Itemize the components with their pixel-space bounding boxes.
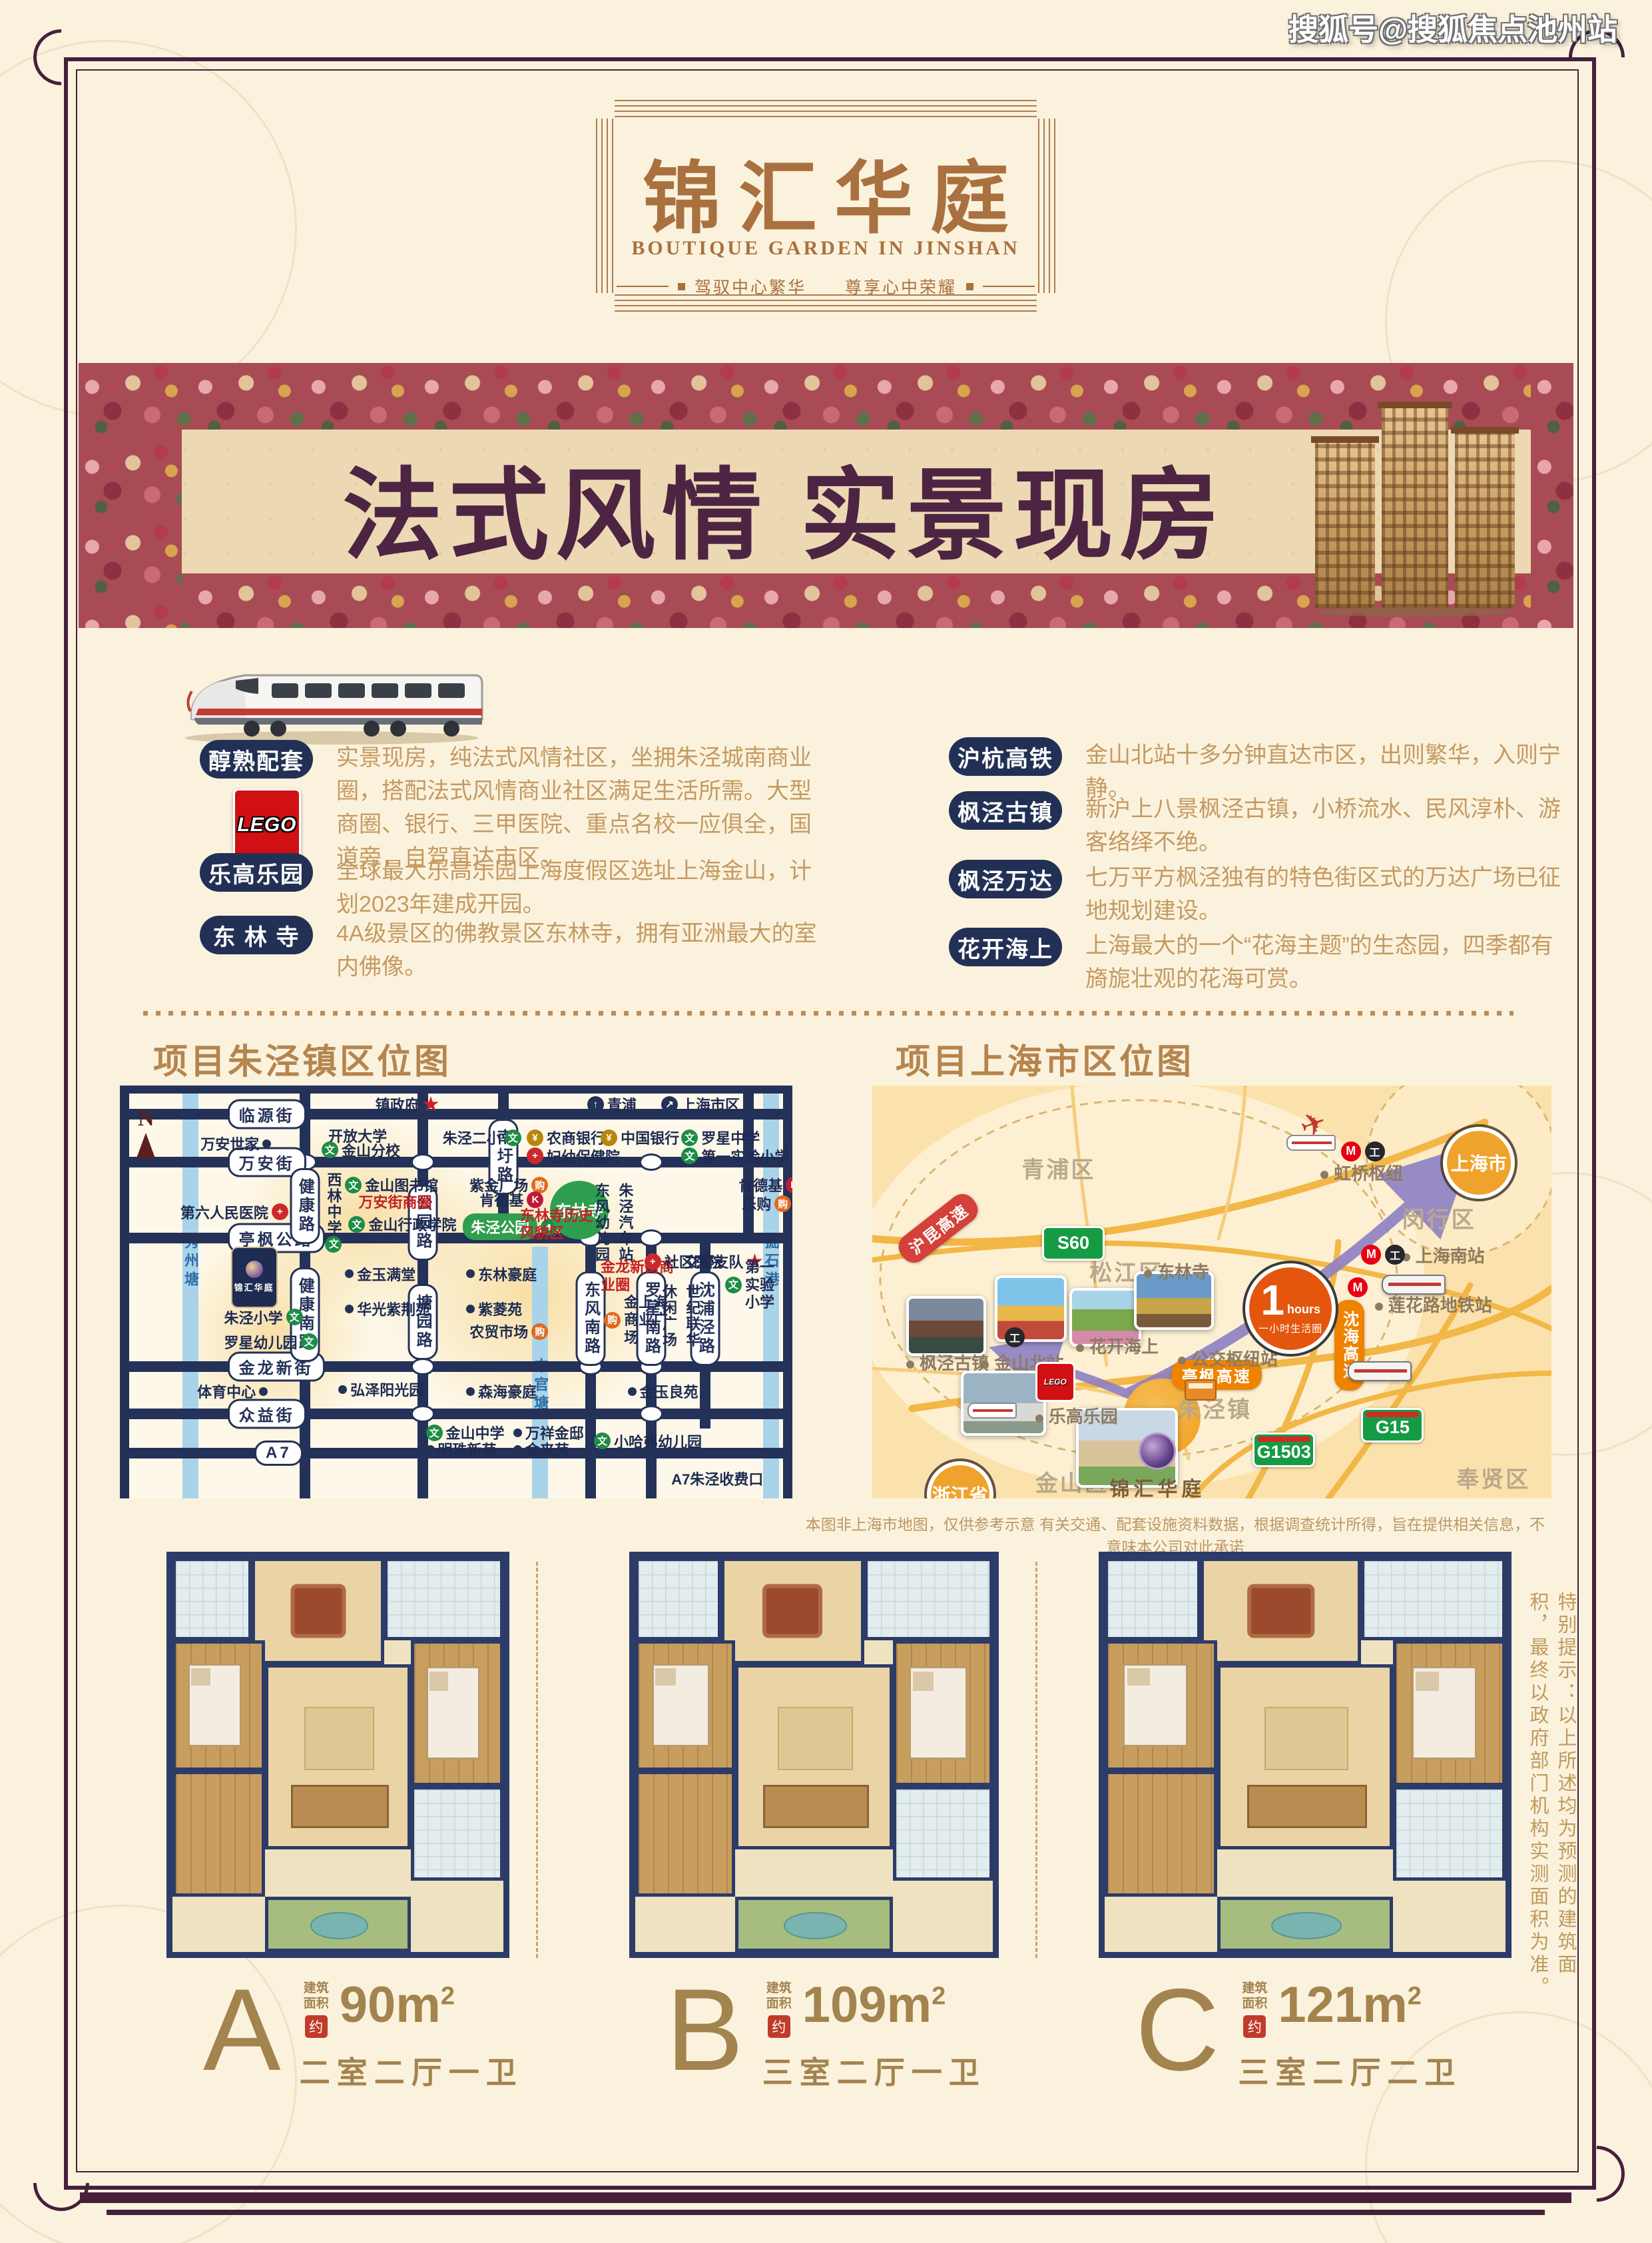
feature-row: 乐高乐园全球最大乐高乐园上海度假区选址上海金山，计划2023年建成开园。 bbox=[200, 853, 822, 921]
kfc-icon: K bbox=[527, 1191, 543, 1208]
side-note: 特别提示：以上所述均为预测的建筑面积，最终以政府部门机构实测面积为准。 bbox=[1523, 1592, 1579, 2005]
floorplan-config: 二室二厅一卫 bbox=[300, 2049, 523, 2092]
map-poi: 东林豪庭 bbox=[463, 1263, 537, 1285]
map-street-label: A7 bbox=[254, 1441, 303, 1466]
map-street-label: 塘园路 bbox=[408, 1284, 437, 1360]
poi-label: 罗星幼儿园 bbox=[224, 1331, 298, 1353]
feature-text: 七万平方枫泾独有的特色街区式的万达广场已征地规划建设。 bbox=[1085, 861, 1571, 928]
poi-label: 万安街商圈 bbox=[359, 1191, 432, 1212]
shield-label: G1503 bbox=[1257, 1442, 1311, 1462]
map-disclaimer: 本图非上海市地图，仅供参考示意 有关交通、配套设施资料数据，根据调查统计所得，旨… bbox=[802, 1512, 1548, 1557]
floral-border-right bbox=[1531, 363, 1573, 628]
metro-icon: M bbox=[1341, 1141, 1361, 1161]
floorplan-room bbox=[735, 1664, 892, 1849]
frame-bottom-bar bbox=[80, 2192, 1571, 2203]
feature-text: 上海最大的一个“花海主题”的生态园，四季都有旖旎壮观的花海可赏。 bbox=[1085, 929, 1571, 996]
floorplan-room bbox=[1105, 1640, 1217, 1770]
floorplan-b-drawing bbox=[629, 1552, 999, 1958]
floorplan-caption: A建筑面积约90m2二室二厅一卫 bbox=[203, 1981, 523, 2092]
map-poi: 弘泽阳光园 bbox=[335, 1379, 423, 1400]
map-poi: 镇政府★ bbox=[376, 1094, 442, 1115]
floorplan-letter: C bbox=[1135, 1981, 1219, 2081]
floorplan-room bbox=[735, 1897, 892, 1952]
map-intersection-dot bbox=[639, 1229, 663, 1247]
floorplan-area-value: 121m2 bbox=[1278, 1981, 1422, 2029]
floorplan-area-sup: 2 bbox=[932, 1983, 946, 2011]
poi-label: 东风幼儿园 bbox=[591, 1183, 612, 1263]
floorplan-room bbox=[1105, 1558, 1201, 1640]
map-poi: 文第一实验小学 bbox=[678, 1145, 789, 1167]
school-icon: 文 bbox=[594, 1433, 611, 1449]
dot-icon bbox=[513, 1445, 522, 1454]
tagline-text: 尊享心中荣耀 bbox=[845, 274, 957, 298]
logo-tagline: 驾驭中心繁华 尊享心中荣耀 bbox=[596, 274, 1055, 298]
dot-icon bbox=[262, 1139, 271, 1148]
features-right-column: 沪杭高铁金山北站十多分钟直达市区，出则繁华，入则宁静。枫泾古镇新沪上八景枫泾古镇… bbox=[949, 736, 1571, 1022]
floorplan-room bbox=[635, 1771, 735, 1897]
map-poi: 朱泾汽车站 bbox=[614, 1183, 635, 1263]
dotted-divider bbox=[143, 1011, 1514, 1016]
map-poi: 农贸市场购 bbox=[469, 1321, 551, 1342]
poi-label: 紫菱苑 bbox=[478, 1298, 522, 1319]
feature-text: 4A级景区的佛教景区东林寺，拥有亚洲最大的室内佛像。 bbox=[336, 917, 822, 984]
school-icon: 文 bbox=[505, 1129, 521, 1146]
map-river bbox=[182, 1086, 198, 1498]
feature-label: 沪杭高铁 bbox=[949, 737, 1062, 776]
map-poi: 休闲广场 bbox=[658, 1284, 679, 1348]
shield-label: S60 bbox=[1057, 1233, 1089, 1253]
feature-row: 花开海上上海最大的一个“花海主题”的生态园，四季都有旖旎壮观的花海可赏。 bbox=[949, 928, 1571, 996]
map-poi: 华光紫荆苑 bbox=[342, 1298, 430, 1319]
feature-label: 醇熟配套 bbox=[200, 740, 313, 779]
school-icon: 文 bbox=[725, 1277, 742, 1293]
map-poi: 朱泾小学文 bbox=[224, 1307, 306, 1328]
map-poi: 森海豪庭 bbox=[463, 1381, 537, 1402]
feature-text: 新沪上八景枫泾古镇，小桥流水、民风淳朴、游客络绎不绝。 bbox=[1085, 793, 1571, 859]
map-poi: 罗星幼儿园文 bbox=[224, 1331, 321, 1353]
floorplan-room bbox=[635, 1558, 721, 1640]
dot-icon bbox=[338, 1385, 347, 1394]
map-poi: 东林寺历史风貌区 bbox=[520, 1207, 600, 1243]
floorplan-area-label-col: 建筑面积约 bbox=[1238, 1981, 1271, 2038]
dot-icon bbox=[466, 1305, 475, 1313]
badge-number: 1 bbox=[1260, 1281, 1284, 1320]
poi-label: 青浦 bbox=[607, 1094, 637, 1115]
floorplan-area-sup: 2 bbox=[441, 1983, 455, 2011]
floorplan-config: 三室二厅二卫 bbox=[1238, 2049, 1462, 2092]
logo-title: 锦汇华庭 bbox=[596, 135, 1055, 248]
bus-icon bbox=[1185, 1379, 1217, 1401]
shop-icon: 购 bbox=[774, 1195, 791, 1212]
metro-icon: M bbox=[1361, 1245, 1381, 1265]
poi-label: 金山分校 bbox=[342, 1139, 400, 1161]
floorplan-a-drawing bbox=[166, 1552, 509, 1958]
nav2-icon: ↗ bbox=[661, 1096, 678, 1113]
floorplan-room bbox=[172, 1558, 252, 1640]
emblem-title: 锦汇华庭 bbox=[1084, 1472, 1231, 1498]
map-intersection-dot bbox=[411, 1153, 435, 1171]
feature-label: 乐高乐园 bbox=[200, 853, 313, 892]
floorplan-area-label: 建筑面积 bbox=[1240, 1981, 1269, 2012]
map-poi: 枫泾古镇 bbox=[906, 1350, 989, 1375]
railway-icon: 工 bbox=[1365, 1141, 1385, 1161]
map-street-label: 临源街 bbox=[228, 1100, 306, 1129]
floorplan-room bbox=[384, 1558, 503, 1640]
poi-label: 农贸市场 bbox=[469, 1321, 528, 1342]
right-map-title: 项目上海市区位图 bbox=[896, 1034, 1194, 1084]
one-hour-badge: 1hours 一小时生活圈 bbox=[1245, 1263, 1336, 1354]
floorplan-room bbox=[172, 1771, 265, 1897]
map-intersection-dot bbox=[639, 1405, 663, 1423]
trainimg-icon bbox=[1348, 1361, 1412, 1381]
poi-label: 金来苑 bbox=[525, 1439, 569, 1460]
shop-icon: 购 bbox=[531, 1323, 548, 1340]
map-poi: 万安街商圈 bbox=[359, 1191, 432, 1212]
railway-icon: 工 bbox=[1005, 1327, 1025, 1347]
poi-label: 金玉良苑 bbox=[640, 1381, 698, 1402]
district-label: 闵行区 bbox=[1402, 1201, 1476, 1234]
road-shield: S60 bbox=[1042, 1226, 1105, 1261]
map-street-horizontal bbox=[120, 1361, 792, 1372]
poi-label: 肯德基 bbox=[479, 1189, 523, 1210]
poi-label: 朱泾小学 bbox=[224, 1307, 283, 1328]
floorplan-room bbox=[1393, 1786, 1506, 1881]
poi-label: 东林豪庭 bbox=[478, 1263, 537, 1285]
tagline-rule bbox=[617, 286, 669, 287]
map-poi: 东风幼儿园 bbox=[591, 1183, 612, 1263]
floorplan-room bbox=[1217, 1897, 1394, 1952]
floorplan-separator bbox=[1035, 1562, 1037, 1958]
map-poi: A7朱泾收费口 bbox=[671, 1468, 763, 1489]
compass-letter: N bbox=[137, 1106, 155, 1131]
floorplan-area-row: 建筑面积约90m2 bbox=[300, 1981, 523, 2038]
school-icon: 文 bbox=[325, 1236, 342, 1253]
school-icon: 文 bbox=[681, 1147, 698, 1164]
map-street-label: 健康路 bbox=[290, 1168, 320, 1244]
poi-label: 镇政府 bbox=[376, 1094, 419, 1115]
train-illustration bbox=[172, 645, 491, 751]
dot-icon bbox=[426, 1445, 435, 1454]
district-label: 青浦区 bbox=[1021, 1151, 1095, 1184]
logo-frame-line bbox=[615, 100, 1037, 117]
floorplan-caption-body: 建筑面积约121m2三室二厅二卫 bbox=[1238, 1981, 1462, 2092]
poi-label: 小哈弗幼儿园 bbox=[614, 1431, 702, 1452]
floorplan-caption-body: 建筑面积约90m2二室二厅一卫 bbox=[300, 1981, 523, 2092]
feature-label: 花开海上 bbox=[949, 928, 1062, 966]
tagline-square-icon bbox=[678, 283, 685, 290]
bank-icon: ¥ bbox=[527, 1129, 543, 1146]
road-shield: G15 bbox=[1361, 1408, 1424, 1442]
map-poi: +妇幼保健院 bbox=[523, 1145, 620, 1167]
dot-icon bbox=[466, 1387, 475, 1396]
compass-north-icon: N bbox=[137, 1106, 155, 1158]
floorplan-separator bbox=[536, 1562, 538, 1958]
shield-label: G15 bbox=[1376, 1417, 1410, 1438]
map-poi: 万安世家 bbox=[200, 1133, 274, 1154]
train-icon bbox=[1286, 1135, 1336, 1151]
map-poi: 朱泾二小文 bbox=[443, 1127, 525, 1148]
approx-seal: 约 bbox=[1243, 2015, 1266, 2038]
building-tower bbox=[1315, 443, 1375, 608]
map-poi: 金来苑 bbox=[510, 1439, 569, 1460]
poi-label: 弘泽阳光园 bbox=[350, 1379, 423, 1400]
map-poi: 文金山分校 bbox=[318, 1139, 400, 1161]
approx-seal: 约 bbox=[305, 2015, 328, 2038]
poi-label: 上海市区 bbox=[681, 1094, 740, 1115]
map-intersection-dot bbox=[411, 1358, 435, 1375]
building-ground-shadow bbox=[1308, 607, 1521, 617]
poster-page: 搜狐号@搜狐焦点池州站 锦汇华庭 BOUTIQUE GARDEN IN JINS… bbox=[0, 0, 1652, 2243]
logo-subtitle: BOUTIQUE GARDEN IN JINSHAN bbox=[596, 237, 1055, 260]
poi-label: 休闲广场 bbox=[658, 1284, 679, 1348]
dot-icon bbox=[259, 1387, 268, 1396]
feature-row: 枫泾万达七万平方枫泾独有的特色街区式的万达广场已征地规划建设。 bbox=[949, 860, 1571, 928]
map-poi: 东林寺 bbox=[1144, 1259, 1209, 1283]
poi-label: 西林中学 bbox=[323, 1172, 344, 1236]
map-poi: 明珠新苑 bbox=[423, 1439, 497, 1460]
map-poi: 乐购购 bbox=[742, 1193, 792, 1214]
project-name: 锦汇华庭 bbox=[234, 1281, 274, 1293]
floorplan-area-sup: 2 bbox=[1408, 1983, 1422, 2011]
floorplan-room bbox=[721, 1558, 864, 1664]
hero-banner: 法式风情 实景现房 bbox=[79, 363, 1573, 628]
nav-icon: ↑ bbox=[587, 1096, 604, 1113]
compass-needle bbox=[137, 1133, 155, 1158]
shop-icon: 购 bbox=[604, 1312, 621, 1329]
poi-label: 第一实验小学 bbox=[701, 1145, 789, 1167]
emblem-icon bbox=[1139, 1433, 1176, 1470]
frame-bottom-bar bbox=[107, 2210, 1545, 2215]
tagline-square-icon bbox=[966, 283, 973, 290]
poi-label: 森海豪庭 bbox=[478, 1381, 537, 1402]
building-tower bbox=[1382, 408, 1448, 608]
banner-title: 法式风情 实景现房 bbox=[218, 435, 1350, 579]
floorplan-config: 三室二厅一卫 bbox=[762, 2049, 986, 2092]
floorplan-room bbox=[1393, 1640, 1506, 1786]
project-emblem-icon bbox=[246, 1261, 263, 1278]
map-poi: 虹桥枢纽 bbox=[1320, 1160, 1403, 1185]
dot-icon bbox=[466, 1269, 475, 1278]
map-poi: 莲花路地铁站 bbox=[1375, 1292, 1492, 1317]
map-poi: 乐高乐园 bbox=[1035, 1403, 1118, 1428]
map-poi: 世纪联华 bbox=[681, 1284, 702, 1348]
project-logo: 锦汇华庭 BOUTIQUE GARDEN IN JINSHAN 驾驭中心繁华 尊… bbox=[596, 100, 1055, 312]
poi-label: 妇幼保健院 bbox=[547, 1145, 620, 1167]
map-poi: 金玉良苑 bbox=[625, 1381, 698, 1402]
lego-icon: LEGO bbox=[1035, 1362, 1075, 1402]
left-map-title: 项目朱泾镇区位图 bbox=[153, 1034, 451, 1084]
floorplan-room bbox=[864, 1558, 993, 1640]
floorplan-room bbox=[1361, 1558, 1506, 1640]
map-intersection-dot bbox=[411, 1405, 435, 1423]
floorplan-room bbox=[893, 1640, 993, 1786]
star-icon: ★ bbox=[423, 1094, 439, 1115]
poi-label: 乐购 bbox=[742, 1193, 771, 1214]
floorplan-caption: B建筑面积约109m2三室二厅一卫 bbox=[666, 1981, 986, 2092]
approx-seal: 约 bbox=[768, 2015, 790, 2038]
poi-label: 朱泾汽车站 bbox=[614, 1183, 635, 1263]
poi-label: 万安世家 bbox=[200, 1133, 259, 1154]
floorplan-room bbox=[411, 1786, 503, 1881]
school-icon: 文 bbox=[348, 1216, 365, 1233]
floorplan-letter: B bbox=[666, 1981, 744, 2081]
badge-text: 一小时生活圈 bbox=[1258, 1321, 1322, 1335]
tagline-rule bbox=[983, 286, 1035, 287]
kfc-icon: K bbox=[786, 1177, 792, 1193]
hosp-icon: + bbox=[272, 1203, 288, 1220]
floorplan-area-label-col: 建筑面积约 bbox=[300, 1981, 333, 2038]
map-poi: 文小哈弗幼儿园 bbox=[591, 1431, 702, 1452]
features-left-column: LEGO 醇熟配套实景现房，纯法式风情社区，坐拥朱泾城南商业圈，搭配法式风情商业… bbox=[200, 736, 822, 1022]
school-icon: 文 bbox=[286, 1309, 303, 1325]
floorplan-room bbox=[265, 1897, 411, 1952]
city-ring-label: 上海市 bbox=[1443, 1127, 1515, 1199]
feature-label: 枫泾万达 bbox=[949, 860, 1062, 898]
zhujing-town-map: N 秀州塘掘石港中官塘临源街万安街亭枫公路金龙新街众益街A7健康路健康南路公园路… bbox=[120, 1086, 792, 1498]
building-tower bbox=[1455, 434, 1515, 608]
district-label: 奉贤区 bbox=[1456, 1461, 1530, 1494]
floorplan-room bbox=[1105, 1771, 1217, 1897]
poi-label: 朱泾二小 bbox=[443, 1127, 501, 1148]
school-icon: 文 bbox=[301, 1333, 318, 1350]
floorplan-room bbox=[265, 1664, 411, 1849]
tagline-text: 驾驭中心繁华 bbox=[694, 274, 806, 298]
poi-label: 世纪联华 bbox=[681, 1284, 702, 1348]
floorplan-caption: C建筑面积约121m2三室二厅二卫 bbox=[1135, 1981, 1462, 2092]
map-street-horizontal bbox=[120, 1086, 792, 1094]
poi-label: 第一实验小学 bbox=[745, 1259, 788, 1311]
map-street-horizontal bbox=[120, 1409, 792, 1419]
floorplan-letter: A bbox=[203, 1981, 281, 2081]
map-poi: 第六人民医院+ bbox=[180, 1201, 292, 1223]
floorplan-room bbox=[1217, 1664, 1394, 1849]
school-icon: 文 bbox=[681, 1129, 698, 1146]
poi-label: 中国银行 bbox=[621, 1127, 679, 1148]
floorplan-caption-body: 建筑面积约109m2三室二厅一卫 bbox=[762, 1981, 986, 2092]
train-icon bbox=[967, 1403, 1017, 1419]
shanghai-region-map: 1hours 一小时生活圈 锦汇华庭 BOUTIQUE GARDEN IN JI… bbox=[872, 1086, 1551, 1498]
map-poi: 文金山行政学院 bbox=[345, 1213, 456, 1235]
poi-label: 第六人民医院 bbox=[180, 1201, 268, 1223]
map-poi: ↗上海市区 bbox=[658, 1094, 740, 1115]
poi-label: 明珠新苑 bbox=[438, 1439, 497, 1460]
bank-icon: ¥ bbox=[601, 1129, 617, 1146]
watermark: 搜狐号@搜狐焦点池州站 bbox=[1288, 5, 1617, 49]
map-street-vertical bbox=[120, 1086, 129, 1498]
road-shield: G1503 bbox=[1252, 1433, 1315, 1467]
poi-label: 金山行政学院 bbox=[368, 1213, 456, 1235]
map-poi: 文第一实验小学 bbox=[722, 1259, 788, 1311]
map-poi: 公交枢纽站 bbox=[1178, 1346, 1278, 1371]
map-poi: 金玉满堂 bbox=[342, 1263, 415, 1285]
floorplan-area-label: 建筑面积 bbox=[764, 1981, 794, 2012]
feature-text: 全球最大乐高乐园上海度假区选址上海金山，计划2023年建成开园。 bbox=[336, 854, 822, 921]
floorplan-room bbox=[252, 1558, 384, 1664]
floorplan-room bbox=[635, 1640, 735, 1770]
floorplan-room bbox=[1201, 1558, 1361, 1664]
floorplan-area-row: 建筑面积约109m2 bbox=[762, 1981, 986, 2038]
floorplan-area-label-col: 建筑面积约 bbox=[762, 1981, 796, 2038]
map-intersection-dot bbox=[639, 1153, 663, 1171]
floorplan-area-row: 建筑面积约121m2 bbox=[1238, 1981, 1462, 2038]
floorplan-room bbox=[893, 1786, 993, 1881]
hosp-icon: + bbox=[645, 1253, 661, 1270]
map-street-label: 众益街 bbox=[228, 1399, 306, 1429]
hosp-icon: + bbox=[527, 1147, 543, 1164]
map-poi: 紫菱苑 bbox=[463, 1298, 522, 1319]
poi-label: 金玉满堂 bbox=[357, 1263, 415, 1285]
map-project-emblem: 锦汇华庭 BOUTIQUE GARDEN IN JINSHAN bbox=[1084, 1433, 1231, 1498]
floorplan-room bbox=[172, 1640, 265, 1770]
map-photo-town bbox=[906, 1296, 986, 1356]
poi-label: 华光紫荆苑 bbox=[357, 1298, 430, 1319]
building-photo bbox=[1315, 398, 1515, 617]
dot-icon bbox=[345, 1305, 354, 1313]
poi-label: 东林寺历史风貌区 bbox=[520, 1207, 600, 1243]
floorplan-area-value: 109m2 bbox=[802, 1981, 946, 2029]
feature-label: 枫泾古镇 bbox=[949, 791, 1062, 830]
railway-icon: 工 bbox=[1385, 1245, 1405, 1265]
map-poi: 花开海上 bbox=[1076, 1333, 1159, 1358]
map-poi: ↑青浦 bbox=[584, 1094, 637, 1115]
dot-icon bbox=[628, 1387, 637, 1396]
school-icon: 文 bbox=[322, 1141, 338, 1158]
floorplan-area-value: 90m2 bbox=[340, 1981, 455, 2029]
map-poi-project: 锦汇华庭 bbox=[231, 1247, 278, 1308]
badge-unit: hours bbox=[1287, 1304, 1320, 1315]
feature-row: 枫泾古镇新沪上八景枫泾古镇，小桥流水、民风淳朴、游客络绎不绝。 bbox=[949, 791, 1571, 859]
floorplan-room bbox=[411, 1640, 503, 1786]
map-poi: 上海南站 bbox=[1402, 1243, 1485, 1267]
feature-row: 东 林 寺4A级景区的佛教景区东林寺，拥有亚洲最大的室内佛像。 bbox=[200, 916, 822, 984]
poi-label: A7朱泾收费口 bbox=[671, 1468, 763, 1489]
dot-icon bbox=[345, 1269, 354, 1278]
dot-icon bbox=[513, 1429, 522, 1437]
floorplan-c-drawing bbox=[1099, 1552, 1512, 1958]
trainimg-icon bbox=[1382, 1275, 1446, 1295]
floral-border-left bbox=[79, 363, 182, 628]
poi-label: 体育中心 bbox=[197, 1381, 256, 1402]
feature-label: 东 林 寺 bbox=[200, 916, 313, 954]
map-poi: 体育中心 bbox=[197, 1381, 271, 1402]
floorplan-area-label: 建筑面积 bbox=[302, 1981, 331, 2012]
